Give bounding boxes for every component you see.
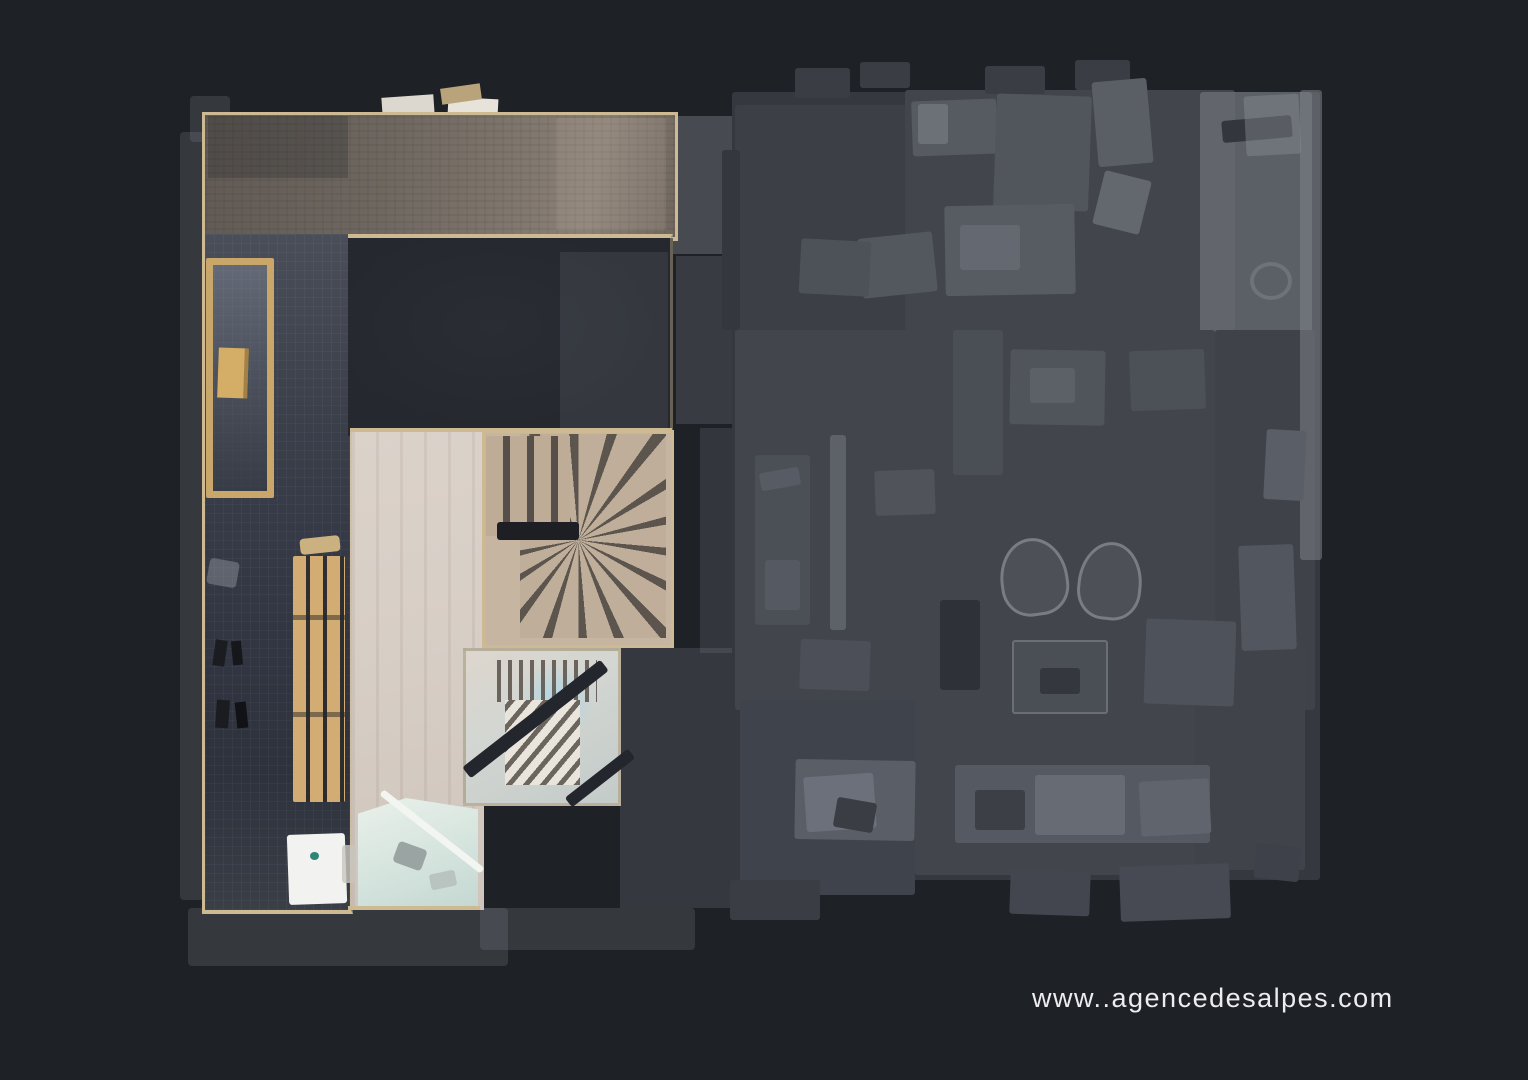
ghost-bed-shadow: [975, 790, 1025, 830]
ghost-railing: [830, 435, 846, 630]
ghost-furniture-pillow: [918, 104, 948, 144]
ghost-furniture: [1243, 94, 1301, 157]
ghost-wall: [953, 330, 1003, 475]
ghost-furniture: [960, 225, 1020, 270]
ghost-debris: [1253, 843, 1301, 883]
ghost-room: [735, 105, 925, 350]
ghost-furniture: [1129, 349, 1206, 412]
ghost-debris: [795, 68, 850, 98]
ghost-debris: [1119, 863, 1231, 922]
ghost-furniture: [874, 469, 936, 516]
ghost-furniture: [1144, 618, 1237, 706]
ghost-furniture-ring: [1250, 262, 1292, 300]
ghost-furniture: [765, 560, 800, 610]
ghost-furniture: [799, 639, 871, 691]
ghost-bed-cover: [1139, 778, 1212, 837]
ghost-debris: [985, 66, 1045, 94]
ghost-debris: [860, 62, 910, 88]
watermark-url: www..agencedesalpes.com: [1032, 983, 1394, 1014]
ghost-table-object: [1040, 668, 1080, 694]
adjacent-level-floorplan-ghost: [0, 0, 1528, 1080]
ghost-furniture: [799, 238, 872, 297]
ghost-furniture: [993, 93, 1092, 211]
ghost-wall-gap: [940, 600, 980, 690]
ghost-furniture: [1091, 78, 1153, 167]
ghost-furniture: [1030, 368, 1075, 403]
ghost-debris: [1009, 869, 1091, 917]
ghost-debris: [722, 150, 740, 330]
ghost-bed-cover: [1035, 775, 1125, 835]
ghost-debris: [730, 880, 820, 920]
ghost-furniture: [1238, 544, 1297, 651]
ghost-furniture: [1263, 429, 1307, 501]
floorplan-scan-image: www..agencedesalpes.com: [0, 0, 1528, 1080]
